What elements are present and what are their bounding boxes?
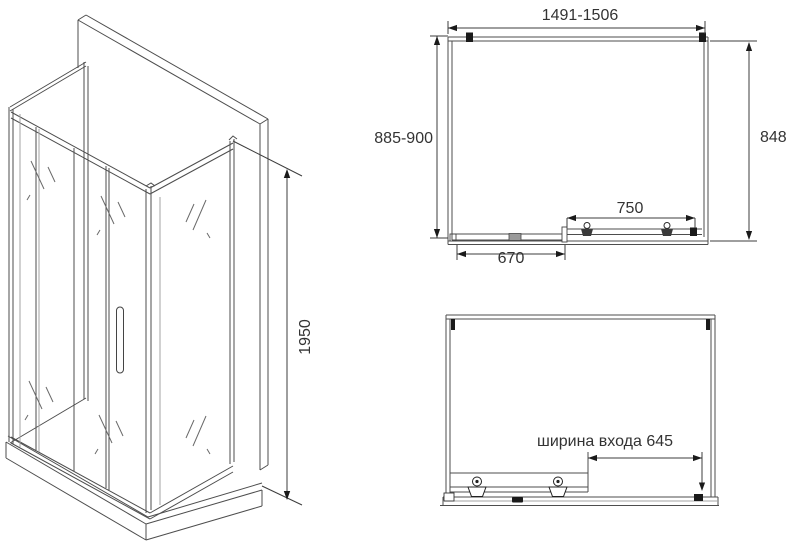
- arrow-right-icon: [696, 25, 705, 31]
- front-door-edge: [450, 452, 588, 492]
- plan-depth-label: 885-900: [374, 130, 433, 147]
- dim-plan-depth: 885-900: [374, 36, 448, 238]
- front-door-frame: [11, 112, 151, 519]
- track-right-clip: [694, 494, 703, 501]
- wall-bracket-left: [451, 319, 455, 330]
- arrow-right-icon: [556, 251, 565, 257]
- dim-height-1950: 1950: [233, 141, 314, 505]
- glass-edge-lines: [20, 114, 160, 505]
- door-stopper: [690, 228, 697, 237]
- technical-drawing-canvas: 1950 1491-1506: [0, 0, 793, 548]
- door-end-profile: [562, 227, 567, 242]
- height-dimension-label: 1950: [297, 319, 314, 355]
- track-center-clip: [512, 497, 523, 503]
- fixed-panel-label: 670: [498, 250, 525, 267]
- wall-bracket-left: [466, 33, 473, 43]
- arrow-up-icon: [746, 42, 752, 51]
- side-glass-label: 848: [760, 129, 787, 146]
- door-handle: [117, 307, 124, 373]
- fixed-panel-clip: [509, 234, 521, 241]
- arrow-up-icon: [284, 169, 290, 178]
- arrow-left-icon: [448, 25, 457, 31]
- shower-enclosure-drawing: 1950 1491-1506: [0, 0, 793, 548]
- shower-tray: [6, 436, 262, 540]
- arrow-right-icon: [693, 455, 702, 461]
- dim-plan-side-glass: 848: [710, 41, 787, 241]
- plan-roller: [661, 223, 673, 237]
- door-width-label: 750: [617, 200, 644, 217]
- right-side-panel: [150, 139, 234, 519]
- entrance-width-label: ширина входа 645: [537, 433, 673, 450]
- front-frame: [446, 315, 715, 497]
- dim-plan-fixed-panel: 670: [457, 245, 565, 267]
- dim-plan-width: 1491-1506: [448, 7, 705, 34]
- track-left-bracket: [444, 493, 454, 501]
- wall-bracket-right: [706, 319, 710, 330]
- arrow-up-icon: [434, 36, 440, 45]
- iso-view: 1950: [6, 15, 314, 540]
- front-roller: [549, 477, 567, 497]
- plan-view: 1491-1506 885-900 848 750 670: [374, 7, 787, 267]
- front-view: ширина входа 645: [440, 315, 719, 506]
- arrow-down-icon: [746, 231, 752, 240]
- arrow-right-icon: [686, 215, 695, 221]
- plan-width-label: 1491-1506: [542, 7, 619, 24]
- arrow-down-icon: [699, 483, 705, 492]
- arrow-left-icon: [588, 455, 597, 461]
- plan-frame: [448, 37, 708, 245]
- corner-profile-caps: [146, 136, 237, 186]
- arrow-left-icon: [567, 215, 576, 221]
- arrow-down-icon: [434, 229, 440, 238]
- left-side-panel: [9, 62, 88, 444]
- front-roller: [468, 477, 486, 497]
- arrow-left-icon: [457, 251, 466, 257]
- plan-roller: [581, 223, 593, 237]
